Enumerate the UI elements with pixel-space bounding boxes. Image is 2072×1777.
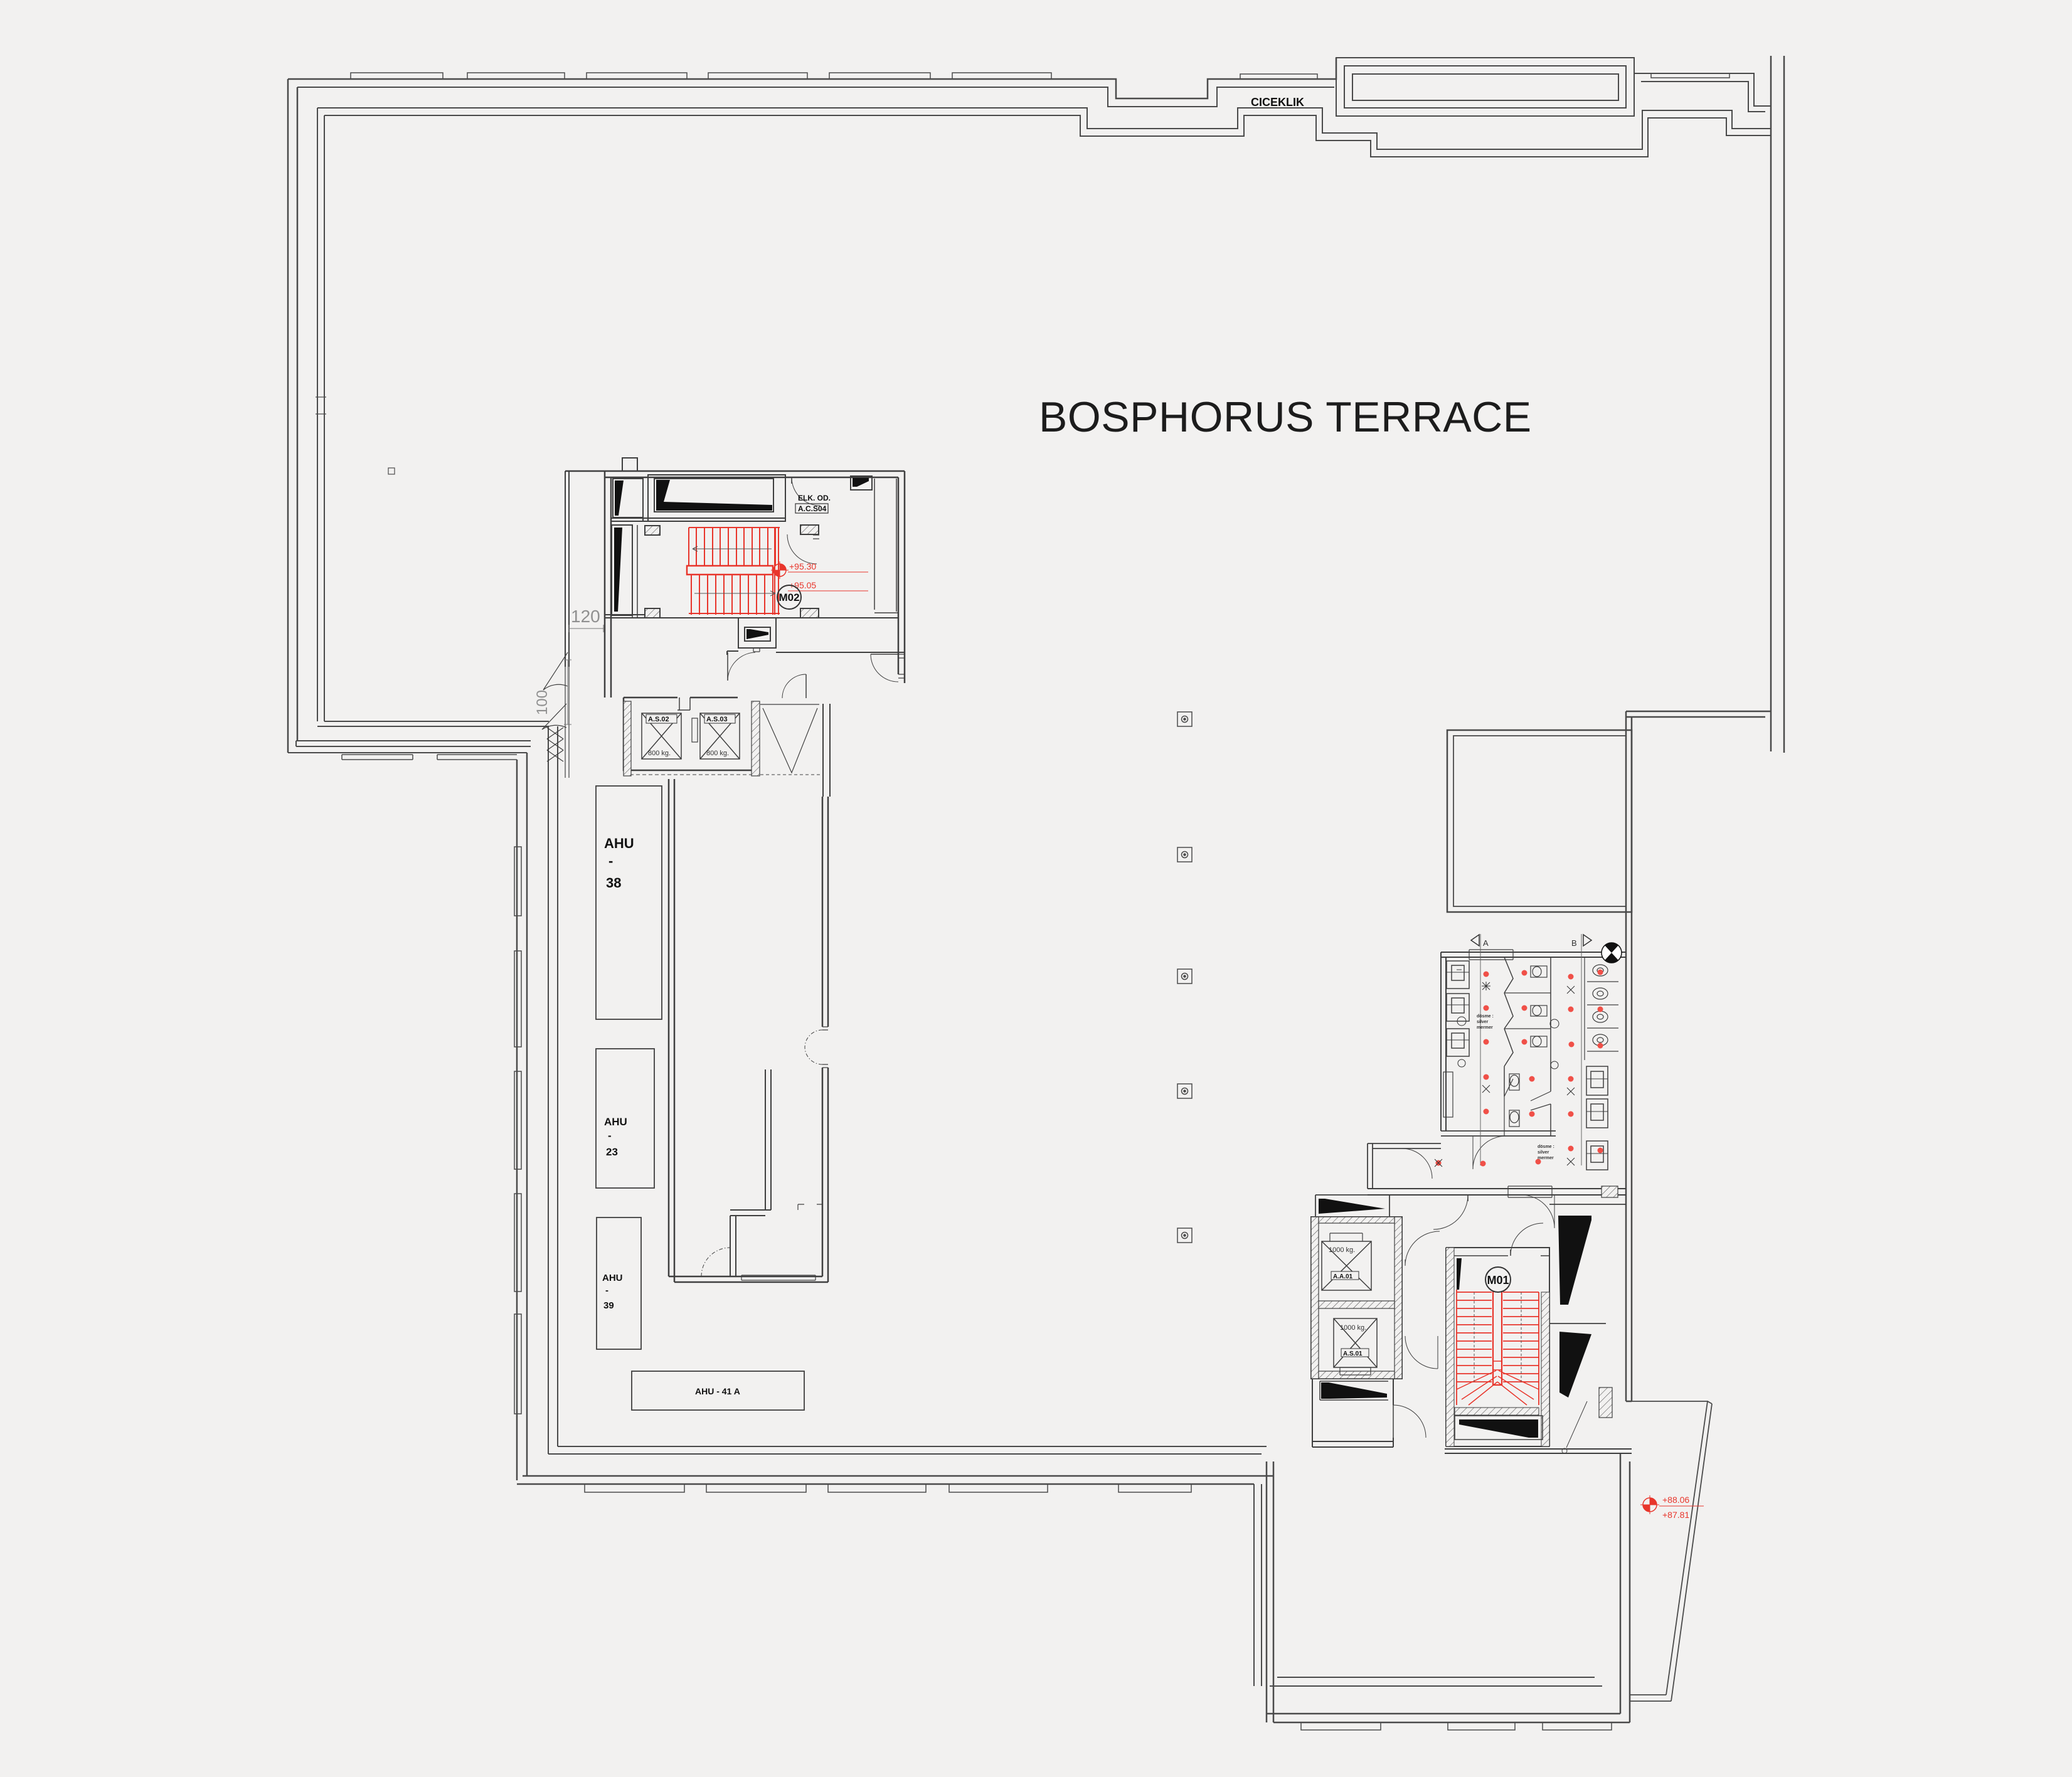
svg-text:800 kg.: 800 kg. xyxy=(648,750,671,757)
svg-text:A: A xyxy=(1483,938,1489,948)
svg-text:-: - xyxy=(608,853,613,869)
svg-text:38: 38 xyxy=(606,875,621,891)
svg-text:mermer: mermer xyxy=(1538,1156,1554,1160)
svg-text:+95.30: +95.30 xyxy=(789,561,816,571)
svg-text:100: 100 xyxy=(534,690,551,715)
svg-text:dösme :: dösme : xyxy=(1538,1145,1554,1149)
svg-text:800 kg.: 800 kg. xyxy=(706,750,729,757)
svg-text:A.S.01: A.S.01 xyxy=(1343,1350,1363,1357)
svg-text:ELK. OD.: ELK. OD. xyxy=(798,494,831,502)
svg-text:AHU - 41 A: AHU - 41 A xyxy=(695,1386,740,1396)
svg-text:CICEKLIK: CICEKLIK xyxy=(1251,96,1304,109)
svg-text:M01: M01 xyxy=(1487,1274,1509,1286)
svg-text:A.C.S04: A.C.S04 xyxy=(798,504,827,513)
svg-text:+88.06: +88.06 xyxy=(1662,1495,1689,1505)
svg-text:silver: silver xyxy=(1477,1020,1489,1024)
svg-text:M02: M02 xyxy=(778,591,799,603)
svg-text:39: 39 xyxy=(603,1300,614,1311)
svg-text:120: 120 xyxy=(571,607,600,626)
svg-text:1000 kg.: 1000 kg. xyxy=(1340,1324,1366,1332)
svg-text:+87.81: +87.81 xyxy=(1662,1510,1689,1520)
svg-text:AHU: AHU xyxy=(604,1116,627,1128)
svg-text:A.S.03: A.S.03 xyxy=(706,716,728,723)
svg-text:dösme :: dösme : xyxy=(1477,1014,1494,1019)
svg-text:silver: silver xyxy=(1538,1150,1549,1155)
svg-text:+95.05: +95.05 xyxy=(789,580,816,590)
svg-text:-: - xyxy=(608,1130,612,1142)
svg-text:-: - xyxy=(605,1285,608,1296)
svg-text:AHU: AHU xyxy=(602,1273,623,1283)
svg-text:23: 23 xyxy=(606,1146,618,1158)
svg-text:BOSPHORUS TERRACE: BOSPHORUS TERRACE xyxy=(1039,393,1532,441)
svg-text:AHU: AHU xyxy=(604,835,634,851)
svg-text:B: B xyxy=(1571,938,1577,948)
svg-text:mermer: mermer xyxy=(1477,1026,1493,1030)
svg-text:A.A.01: A.A.01 xyxy=(1333,1273,1353,1280)
svg-text:A.S.02: A.S.02 xyxy=(648,716,669,723)
svg-text:1000 kg.: 1000 kg. xyxy=(1329,1246,1355,1254)
